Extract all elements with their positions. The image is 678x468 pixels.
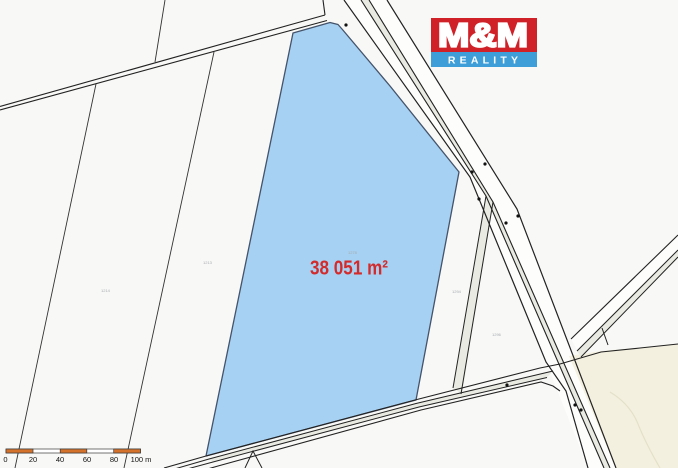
- svg-text:M&M: M&M: [438, 17, 528, 54]
- svg-text:100 m: 100 m: [131, 455, 152, 464]
- svg-text:60: 60: [83, 455, 91, 464]
- svg-text:1278: 1278: [348, 250, 358, 255]
- svg-text:1214: 1214: [101, 288, 111, 293]
- svg-text:1296: 1296: [492, 332, 502, 337]
- svg-text:20: 20: [29, 455, 37, 464]
- svg-text:38 051 m²: 38 051 m²: [310, 258, 388, 280]
- svg-text:1213: 1213: [203, 260, 213, 265]
- svg-text:80: 80: [110, 455, 118, 464]
- svg-text:1294: 1294: [452, 289, 462, 294]
- svg-text:REALITY: REALITY: [448, 55, 522, 67]
- svg-text:40: 40: [56, 455, 64, 464]
- svg-text:0: 0: [3, 455, 7, 464]
